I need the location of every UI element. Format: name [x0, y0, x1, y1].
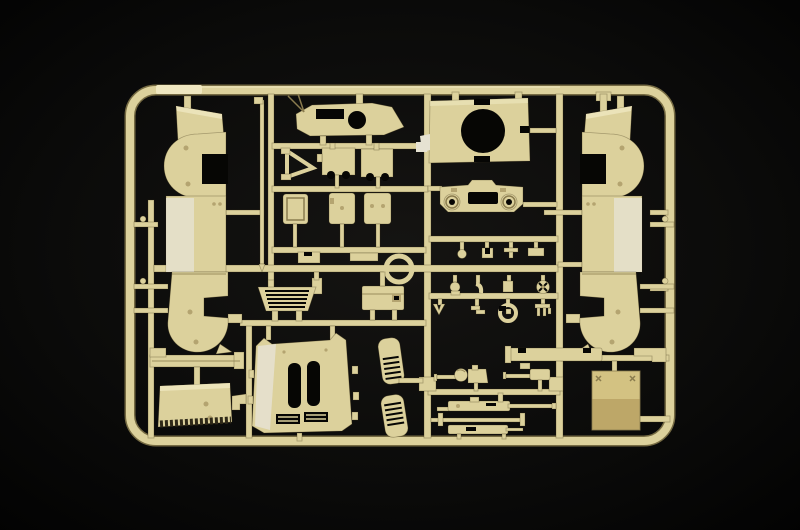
- sprue-photo: [0, 0, 800, 530]
- runner-stub: [399, 378, 423, 383]
- part-access-plate: [592, 361, 640, 430]
- moulding-gate-tab: [156, 85, 202, 94]
- part-glacis-plate: [248, 326, 359, 441]
- part-channel-bar: [505, 346, 602, 363]
- photo-stage: [0, 0, 800, 530]
